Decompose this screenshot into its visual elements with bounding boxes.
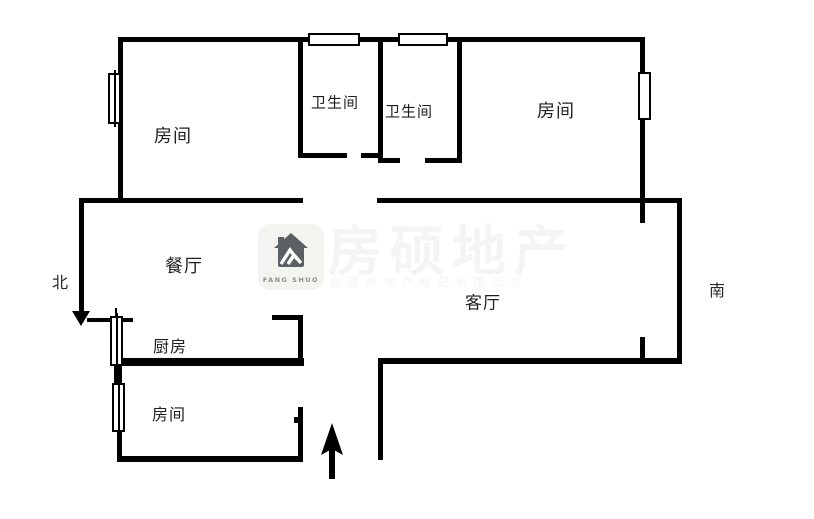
wall-living-bottom bbox=[378, 358, 682, 364]
wall-end-arrow-icon bbox=[72, 311, 90, 327]
window-roombl-left bbox=[112, 383, 125, 432]
room-label-bottom-left: 房间 bbox=[152, 401, 186, 425]
compass-north-label: 北 bbox=[52, 269, 68, 293]
window-bath1-top bbox=[308, 33, 360, 46]
wall-door-tick bbox=[294, 417, 298, 423]
wall-bath2-doorjamb bbox=[383, 158, 400, 163]
compass-south-label: 南 bbox=[709, 277, 725, 301]
wall-living-stub bbox=[640, 337, 645, 362]
wall-bath-middle bbox=[378, 40, 383, 163]
wall-bath1-bottom bbox=[298, 153, 347, 158]
window-room-top-left bbox=[108, 73, 121, 124]
watermark-company-text: 房硕房地产经纪有限公司 bbox=[330, 274, 580, 290]
floor-plan: 房间 卫生间 卫生间 房间 餐厅 客厅 厨房 房间 北 南 房硕地产 房硕房地产… bbox=[0, 0, 814, 519]
wall-middle-right bbox=[377, 198, 682, 203]
wall-bath1-left bbox=[298, 40, 303, 158]
entrance-arrow-icon bbox=[319, 423, 345, 479]
wall-roombl-right bbox=[298, 407, 303, 462]
room-label-bath-1: 卫生间 bbox=[311, 92, 359, 113]
wall-bath1-doorjamb bbox=[361, 153, 378, 158]
agency-logo: FANG SHUO bbox=[258, 224, 324, 290]
window-kitchen-left bbox=[110, 316, 123, 366]
wall-entry-left bbox=[378, 358, 383, 460]
logo-caption-text: FANG SHUO bbox=[263, 276, 319, 284]
wall-middle-left bbox=[79, 198, 303, 203]
room-label-living: 客厅 bbox=[465, 289, 501, 314]
room-label-bath-2: 卫生间 bbox=[385, 101, 433, 122]
window-bath2-top bbox=[398, 33, 448, 46]
wall-kitchen-right bbox=[298, 315, 303, 363]
wall-bath2-bottom bbox=[425, 158, 462, 163]
wall-kitchen-bottom bbox=[122, 358, 304, 366]
room-label-kitchen: 厨房 bbox=[153, 333, 187, 357]
wall-bath2-right bbox=[457, 40, 462, 163]
house-logo-icon bbox=[271, 231, 311, 273]
room-label-top-right: 房间 bbox=[537, 97, 575, 123]
room-label-dining: 餐厅 bbox=[165, 252, 203, 278]
window-room-top-right bbox=[638, 72, 651, 120]
wall-living-right bbox=[677, 198, 682, 364]
wall-right-top bbox=[640, 37, 645, 223]
room-label-top-left: 房间 bbox=[154, 122, 192, 148]
wall-roombl-bottom bbox=[117, 456, 303, 462]
wall-dining-left bbox=[79, 198, 84, 313]
